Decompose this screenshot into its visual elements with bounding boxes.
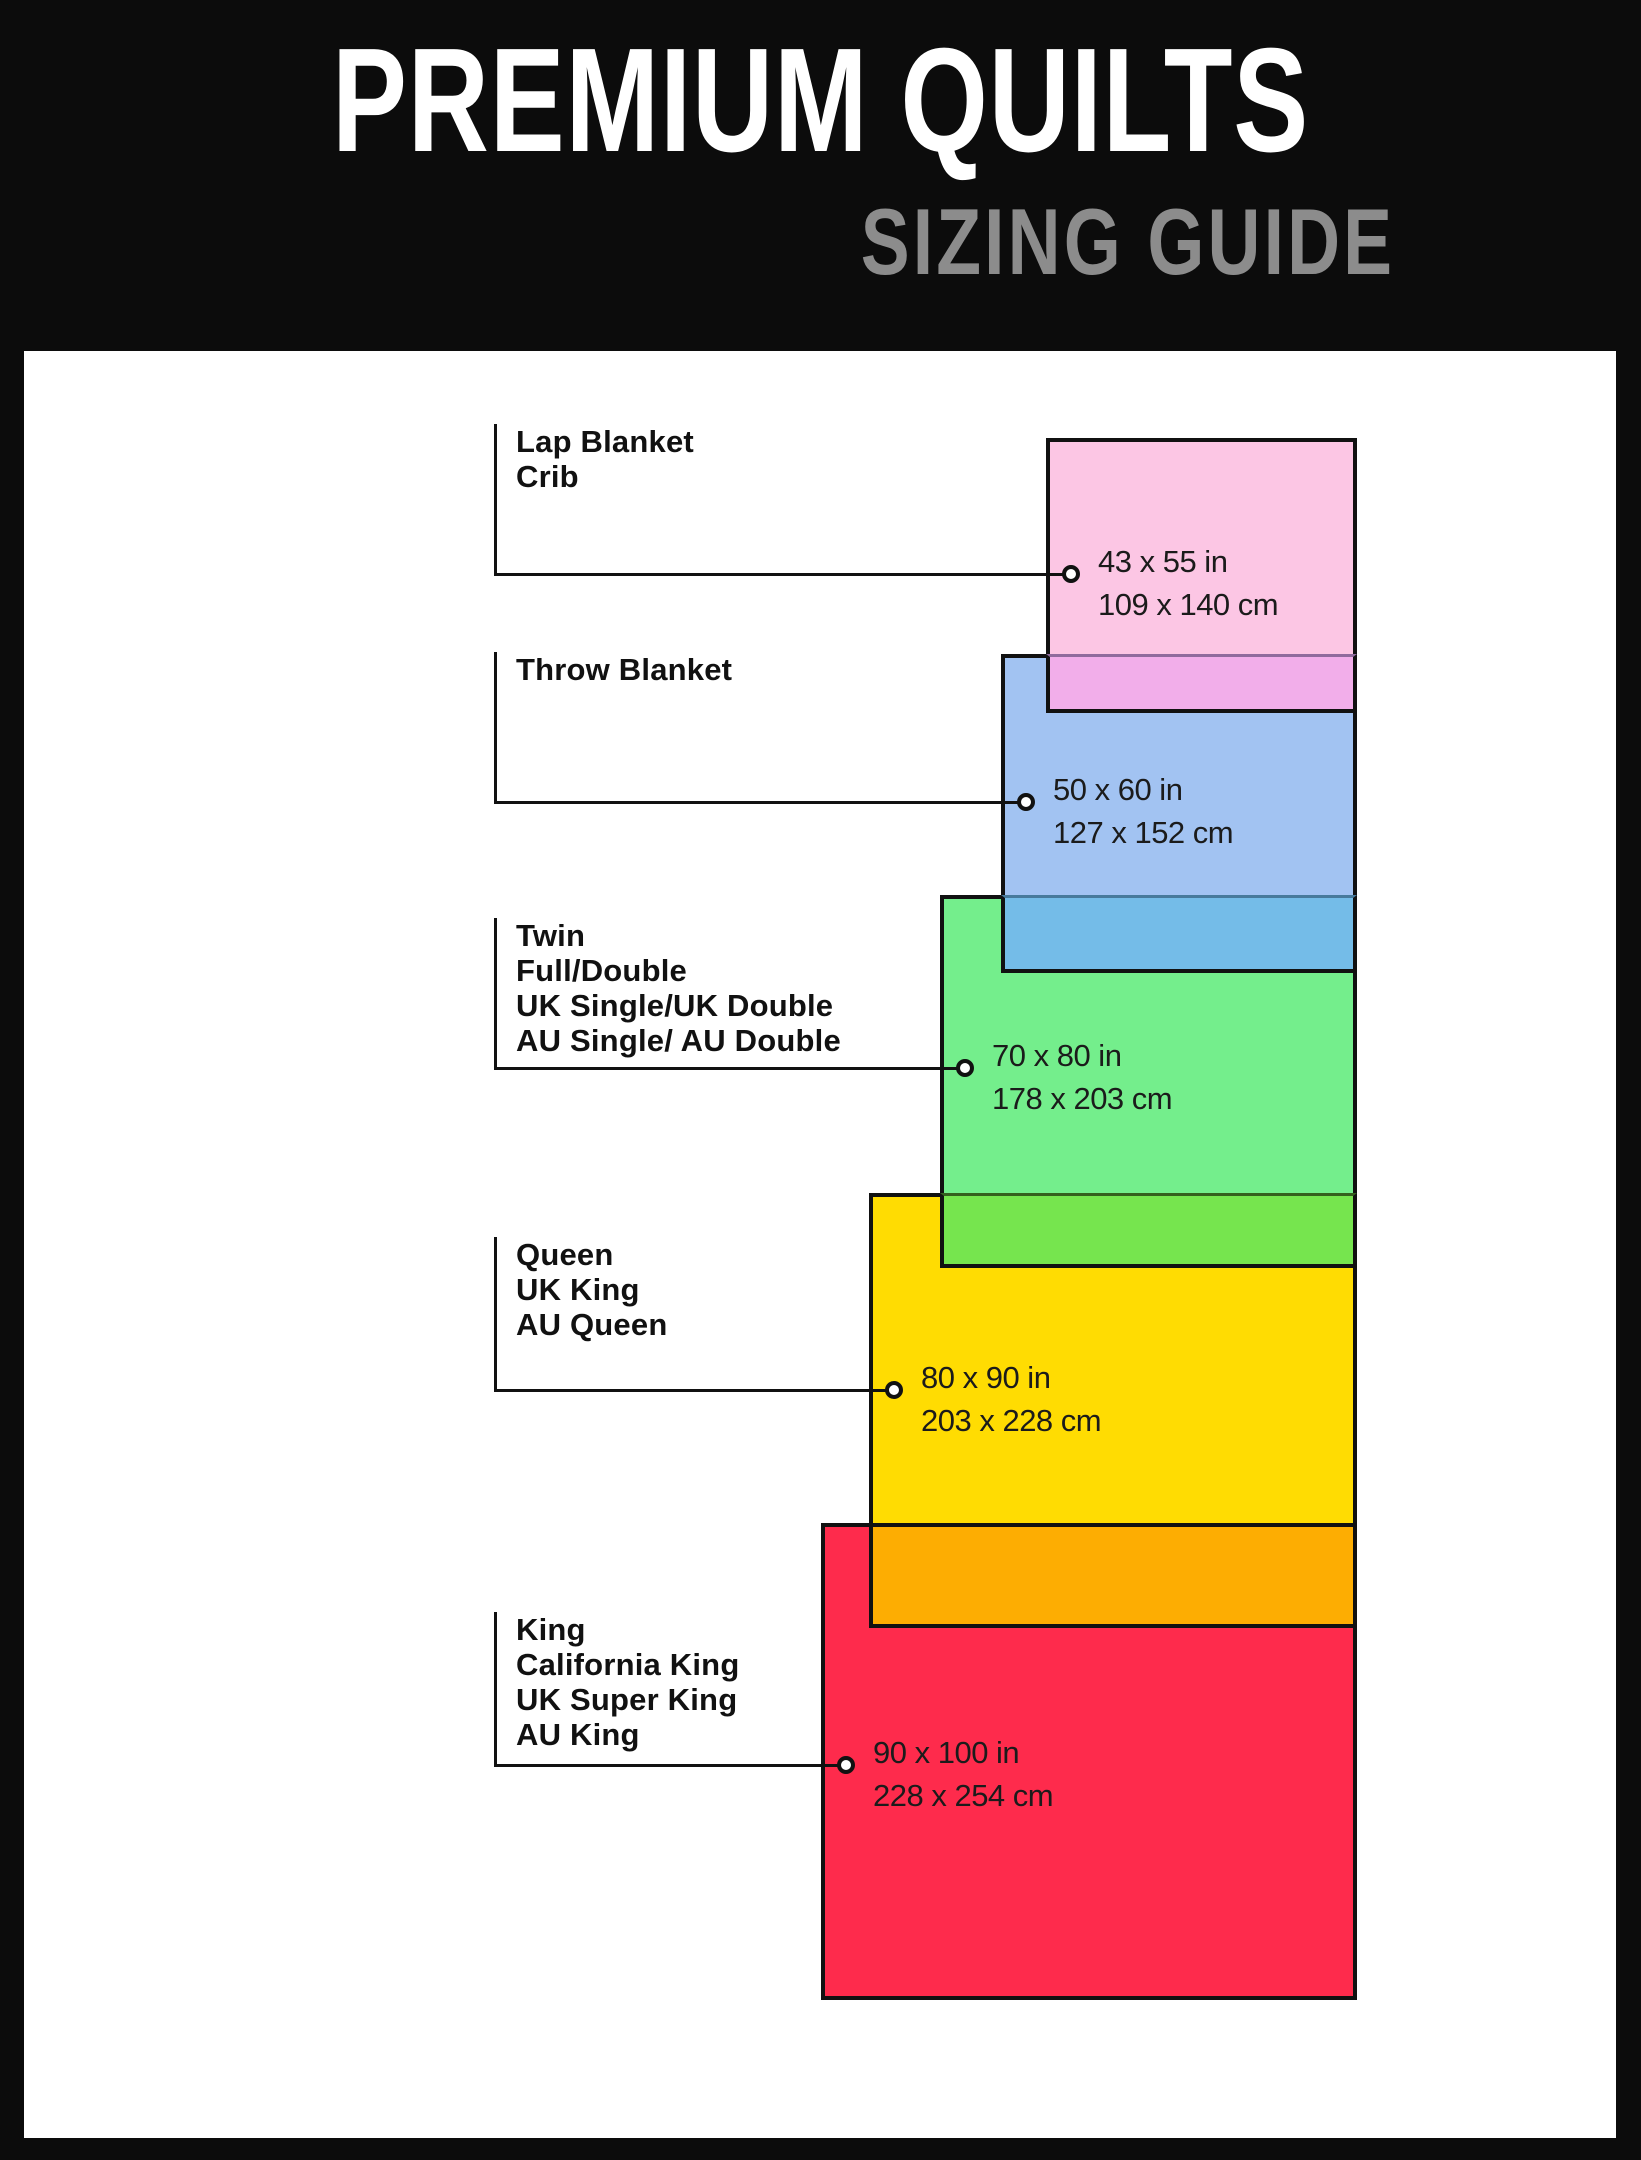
- page-title: PREMIUM QUILTS: [197, 26, 1444, 176]
- leader-dot-queen: [885, 1381, 903, 1399]
- leader-dot-king: [837, 1756, 855, 1774]
- label-line: Queen: [516, 1237, 667, 1272]
- dims-cm: 228 x 254 cm: [873, 1774, 1053, 1817]
- label-line: UK Single/UK Double: [516, 988, 841, 1023]
- leader-vline-king: [494, 1612, 497, 1767]
- label-line: UK Super King: [516, 1682, 739, 1717]
- label-line: AU Single/ AU Double: [516, 1023, 841, 1058]
- leader-vline-throw-blanket: [494, 652, 497, 804]
- dims-cm: 178 x 203 cm: [992, 1077, 1172, 1120]
- overlap-yellow-red: [869, 1523, 1357, 1628]
- dims-queen: 80 x 90 in 203 x 228 cm: [921, 1356, 1101, 1442]
- label-line: King: [516, 1612, 739, 1647]
- dims-inches: 90 x 100 in: [873, 1731, 1053, 1774]
- dims-king: 90 x 100 in 228 x 254 cm: [873, 1731, 1053, 1817]
- label-line: UK King: [516, 1272, 667, 1307]
- dims-twin: 70 x 80 in 178 x 203 cm: [992, 1034, 1172, 1120]
- leader-dot-throw-blanket: [1017, 793, 1035, 811]
- label-throw-blanket: Throw Blanket: [516, 652, 732, 687]
- leader-hline-queen: [494, 1389, 886, 1392]
- dims-inches: 43 x 55 in: [1098, 540, 1278, 583]
- label-line: Crib: [516, 459, 694, 494]
- leader-vline-queen: [494, 1237, 497, 1392]
- leader-vline-lap-blanket: [494, 424, 497, 576]
- leader-vline-twin: [494, 918, 497, 1070]
- label-queen: Queen UK King AU Queen: [516, 1237, 667, 1342]
- dims-inches: 70 x 80 in: [992, 1034, 1172, 1077]
- dims-throw-blanket: 50 x 60 in 127 x 152 cm: [1053, 768, 1233, 854]
- overlap-blue-green: [1001, 895, 1357, 973]
- dims-cm: 203 x 228 cm: [921, 1399, 1101, 1442]
- label-line: California King: [516, 1647, 739, 1682]
- dims-cm: 127 x 152 cm: [1053, 811, 1233, 854]
- leader-hline-lap-blanket: [494, 573, 1063, 576]
- dims-inches: 80 x 90 in: [921, 1356, 1101, 1399]
- label-twin: Twin Full/Double UK Single/UK Double AU …: [516, 918, 841, 1058]
- leader-dot-lap-blanket: [1062, 565, 1080, 583]
- leader-dot-twin: [956, 1059, 974, 1077]
- overlap-pink-blue: [1046, 654, 1357, 713]
- dims-cm: 109 x 140 cm: [1098, 583, 1278, 626]
- infographic-canvas: PREMIUM QUILTS SIZING GUIDE Lap Blanket …: [0, 0, 1641, 2160]
- leader-hline-king: [494, 1764, 838, 1767]
- dims-lap-blanket: 43 x 55 in 109 x 140 cm: [1098, 540, 1278, 626]
- label-line: Lap Blanket: [516, 424, 694, 459]
- label-line: AU Queen: [516, 1307, 667, 1342]
- label-lap-blanket: Lap Blanket Crib: [516, 424, 694, 494]
- label-line: Throw Blanket: [516, 652, 732, 687]
- sizing-diagram-board: Lap Blanket Crib 43 x 55 in 109 x 140 cm…: [24, 351, 1616, 2138]
- label-line: Full/Double: [516, 953, 841, 988]
- dims-inches: 50 x 60 in: [1053, 768, 1233, 811]
- label-line: AU King: [516, 1717, 739, 1752]
- label-line: Twin: [516, 918, 841, 953]
- leader-hline-throw-blanket: [494, 801, 1018, 804]
- leader-hline-twin: [494, 1067, 957, 1070]
- header-banner: PREMIUM QUILTS SIZING GUIDE: [0, 0, 1641, 351]
- page-subtitle: SIZING GUIDE: [861, 194, 1395, 290]
- overlap-green-yellow: [940, 1193, 1357, 1268]
- label-king: King California King UK Super King AU Ki…: [516, 1612, 739, 1752]
